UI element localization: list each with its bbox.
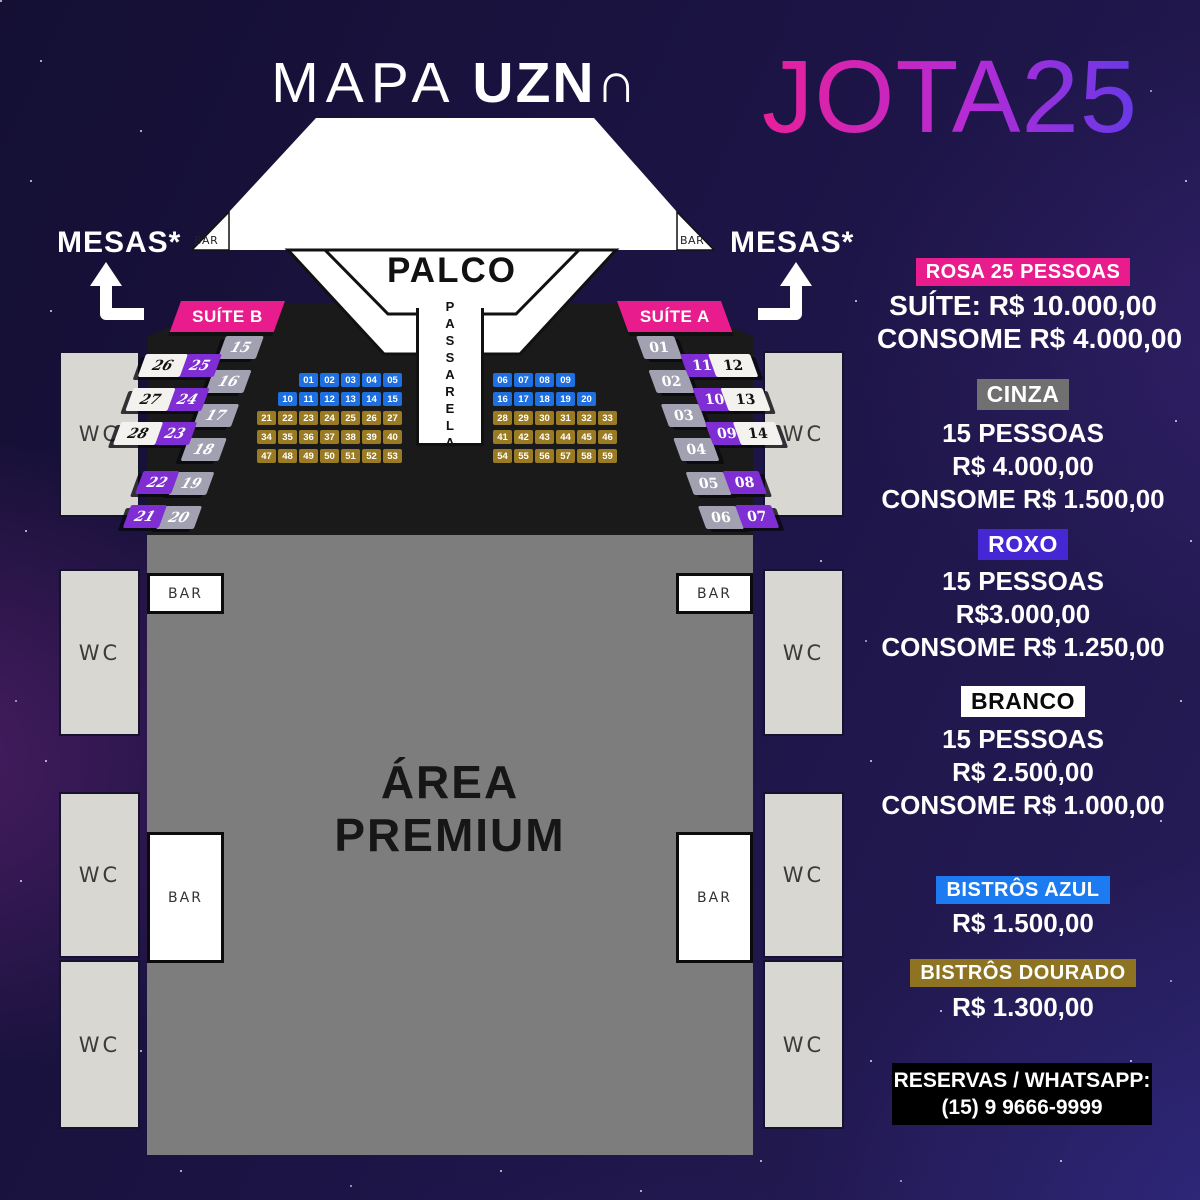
- bistro-table: 47: [257, 449, 276, 463]
- bistro-table: 42: [514, 430, 533, 444]
- premium-area: ÁREA PREMIUM: [147, 535, 753, 1155]
- suite-seat: 27: [125, 388, 175, 411]
- suite-seat: 13: [720, 388, 770, 411]
- bistro-table: 53: [383, 449, 402, 463]
- suite-seat: 26: [138, 354, 188, 377]
- bistro-table: 09: [556, 373, 575, 387]
- bistro-table: 03: [341, 373, 360, 387]
- stage-bar-left-label: BAR: [194, 234, 218, 247]
- wc-box: WC: [763, 960, 844, 1129]
- legend-price: CONSOME R$ 1.250,00: [877, 631, 1169, 664]
- bistro-table: 25: [341, 411, 360, 425]
- bistro-table: 54: [493, 449, 512, 463]
- reservas-phone: (15) 9 9666-9999: [892, 1094, 1152, 1121]
- bistro-table: 23: [299, 411, 318, 425]
- premium-line2: PREMIUM: [147, 809, 753, 862]
- bistro-table: 21: [257, 411, 276, 425]
- bistro-table: 41: [493, 430, 512, 444]
- bistro-row: 06070809: [493, 373, 575, 387]
- wc-box: WC: [59, 792, 140, 958]
- bistro-table: 02: [320, 373, 339, 387]
- bistro-table: 45: [577, 430, 596, 444]
- bistro-table: 36: [299, 430, 318, 444]
- bistros-azul-badge: BISTRÔS AZUL: [936, 876, 1109, 904]
- legend-item-branco: BRANCO 15 PESSOAS R$ 2.500,00 CONSOME R$…: [877, 686, 1169, 822]
- bar-box: BAR: [147, 832, 224, 963]
- bistro-table: 15: [383, 392, 402, 406]
- legend-price: CONSOME R$ 1.000,00: [877, 789, 1169, 822]
- bar-box: BAR: [676, 573, 753, 614]
- legend-item-cinza: CINZA 15 PESSOAS R$ 4.000,00 CONSOME R$ …: [877, 379, 1169, 516]
- wc-box: WC: [59, 569, 140, 736]
- palco-label: PALCO: [352, 251, 552, 291]
- legend-price: R$3.000,00: [877, 598, 1169, 631]
- legend-price: R$ 2.500,00: [877, 756, 1169, 789]
- bistro-table: 38: [341, 430, 360, 444]
- rosa-badge: ROSA 25 PESSOAS: [916, 258, 1131, 286]
- bistro-table: 08: [535, 373, 554, 387]
- bistro-row: 1617181920: [493, 392, 596, 406]
- bistro-table: 31: [556, 411, 575, 425]
- map-title-bold: UZN∩: [472, 51, 638, 115]
- bistro-table: 58: [577, 449, 596, 463]
- legend-item-rosa: ROSA 25 PESSOAS SUÍTE: R$ 10.000,00 CONS…: [877, 258, 1169, 355]
- bistro-table: 34: [257, 430, 276, 444]
- bistro-table: 57: [556, 449, 575, 463]
- suite-seat: 08: [723, 471, 767, 494]
- bistro-table: 30: [535, 411, 554, 425]
- bistro-table: 27: [383, 411, 402, 425]
- bistro-table: 24: [320, 411, 339, 425]
- bistro-table: 12: [320, 392, 339, 406]
- legend-price: 15 PESSOAS: [877, 417, 1169, 450]
- page-title: MAPA UZN∩: [155, 50, 755, 116]
- stage-bar-right-label: BAR: [680, 234, 704, 247]
- bistro-row: 47484950515253: [257, 449, 402, 463]
- bistro-table: 22: [278, 411, 297, 425]
- premium-area-label: ÁREA PREMIUM: [147, 756, 753, 862]
- bistro-table: 19: [556, 392, 575, 406]
- venue-map: MAPA UZN∩ JOTA25 MESAS* MESAS* ÁREA PREM…: [0, 0, 1200, 1200]
- suite-b-banner: SUÍTE B: [170, 301, 285, 332]
- bistro-table: 26: [362, 411, 381, 425]
- bistro-table: 56: [535, 449, 554, 463]
- bistro-table: 59: [598, 449, 617, 463]
- branco-badge: BRANCO: [961, 686, 1085, 717]
- legend-price: R$ 4.000,00: [877, 450, 1169, 483]
- bistro-table: 37: [320, 430, 339, 444]
- suite-seat: 28: [113, 422, 163, 445]
- bistro-table: 39: [362, 430, 381, 444]
- bistro-table: 13: [341, 392, 360, 406]
- bistro-table: 29: [514, 411, 533, 425]
- bistro-table: 05: [383, 373, 402, 387]
- wc-box: WC: [763, 792, 844, 958]
- bistro-table: 55: [514, 449, 533, 463]
- bistro-table: 07: [514, 373, 533, 387]
- bistro-table: 28: [493, 411, 512, 425]
- bistro-row: 545556575859: [493, 449, 617, 463]
- bistro-table: 11: [299, 392, 318, 406]
- bistro-table: 14: [362, 392, 381, 406]
- bistro-row: 282930313233: [493, 411, 617, 425]
- bistro-table: 06: [493, 373, 512, 387]
- legend-item-bistros-azul: BISTRÔS AZUL R$ 1.500,00: [877, 876, 1169, 940]
- mesas-left-label: MESAS*: [57, 226, 181, 260]
- bistro-table: 04: [362, 373, 381, 387]
- premium-line1: ÁREA: [147, 756, 753, 809]
- bistro-table: 40: [383, 430, 402, 444]
- bar-box: BAR: [147, 573, 224, 614]
- passarela-catwalk: PASSARELA: [416, 308, 484, 446]
- legend-price: R$ 1.500,00: [877, 907, 1169, 940]
- reservas-label: RESERVAS / WHATSAPP:: [892, 1067, 1152, 1094]
- mesas-right-arrow-icon: [756, 258, 822, 324]
- legend-price: 15 PESSOAS: [877, 565, 1169, 598]
- legend-item-roxo: ROXO 15 PESSOAS R$3.000,00 CONSOME R$ 1.…: [877, 529, 1169, 664]
- bistro-table: 16: [493, 392, 512, 406]
- bistro-table: 32: [577, 411, 596, 425]
- cinza-badge: CINZA: [977, 379, 1070, 410]
- legend-price: CONSOME R$ 1.500,00: [877, 483, 1169, 516]
- reservas-whatsapp-box: RESERVAS / WHATSAPP: (15) 9 9666-9999: [892, 1063, 1152, 1125]
- bistro-row: 101112131415: [278, 392, 402, 406]
- bistro-table: 49: [299, 449, 318, 463]
- wc-box: WC: [59, 960, 140, 1129]
- bistro-table: 33: [598, 411, 617, 425]
- bistro-row: 34353637383940: [257, 430, 402, 444]
- bistro-table: 18: [535, 392, 554, 406]
- passarela-label: PASSARELA: [443, 299, 458, 452]
- bar-box: BAR: [676, 832, 753, 963]
- legend-item-bistros-dourado: BISTRÔS DOURADO R$ 1.300,00: [877, 959, 1169, 1024]
- bistro-table: 46: [598, 430, 617, 444]
- bistro-table: 43: [535, 430, 554, 444]
- bistro-row: 21222324252627: [257, 411, 402, 425]
- bistro-table: 10: [278, 392, 297, 406]
- bistro-row: 414243444546: [493, 430, 617, 444]
- bistro-table: 51: [341, 449, 360, 463]
- event-logo: JOTA25: [735, 38, 1165, 156]
- legend-price: CONSOME R$ 4.000,00: [877, 322, 1169, 355]
- bistro-table: 35: [278, 430, 297, 444]
- suite-seat: 14: [733, 422, 783, 445]
- suite-a-banner: SUÍTE A: [617, 301, 732, 332]
- bistro-table: 48: [278, 449, 297, 463]
- mesas-left-arrow-icon: [80, 258, 146, 324]
- bistro-table: 50: [320, 449, 339, 463]
- bistro-table: 17: [514, 392, 533, 406]
- bistro-table: 01: [299, 373, 318, 387]
- suite-seat: 01: [636, 336, 682, 359]
- mesas-right-label: MESAS*: [730, 226, 854, 260]
- bistro-table: 52: [362, 449, 381, 463]
- legend-price: R$ 1.300,00: [877, 991, 1169, 1024]
- bistros-dourado-badge: BISTRÔS DOURADO: [910, 959, 1135, 987]
- legend-price: SUÍTE: R$ 10.000,00: [877, 289, 1169, 322]
- suite-seat: 12: [708, 354, 758, 377]
- legend-price: 15 PESSOAS: [877, 723, 1169, 756]
- roxo-badge: ROXO: [978, 529, 1068, 560]
- bistro-table: 20: [577, 392, 596, 406]
- bistro-row: 0102030405: [299, 373, 402, 387]
- map-title-light: MAPA: [271, 51, 456, 115]
- bistro-table: 44: [556, 430, 575, 444]
- wc-box: WC: [763, 569, 844, 736]
